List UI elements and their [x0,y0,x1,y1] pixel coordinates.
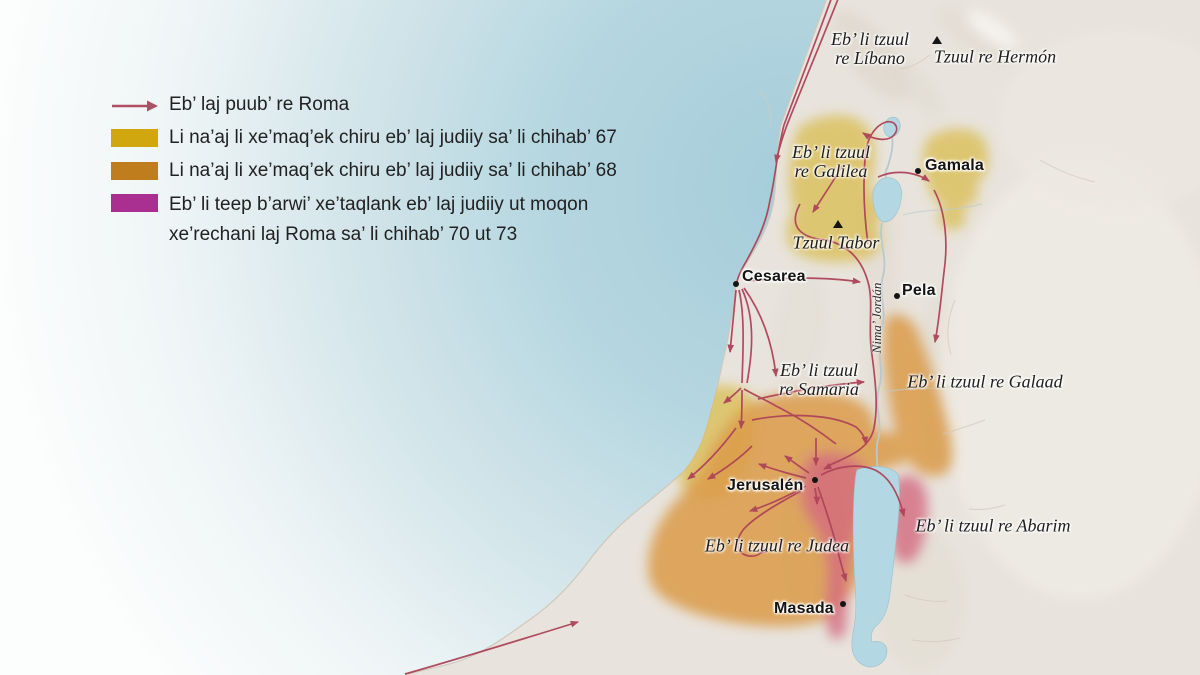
swatch-year-70-73-icon [111,194,158,212]
legend-label-year-67: Li na’aj li xe’maq’ek chiru eb’ laj judi… [169,125,617,151]
swatch-year-67-icon [111,129,158,147]
legend-label-year-70-73: Eb’ li teep b’arwi’ xe’taqlank eb’ laj j… [169,190,588,250]
city-dot-cesarea [733,281,739,287]
legend-item-year-67: Li na’aj li xe’maq’ek chiru eb’ laj judi… [111,125,617,151]
map-canvas: Eb’ li tzuulre Líbano Tzuul re Hermón Eb… [0,0,1200,675]
city-dot-masada [840,601,846,607]
city-dot-gamala [915,168,921,174]
legend-label-roman-army: Eb’ laj puub’ re Roma [169,92,349,118]
roman-route-arrow-icon [111,99,158,118]
swatch-year-68-icon [111,162,158,180]
legend-item-year-68: Li na’aj li xe’maq’ek chiru eb’ laj judi… [111,158,617,184]
city-dot-pela [894,293,900,299]
city-dot-jerusalen [812,477,818,483]
legend-label-year-68: Li na’aj li xe’maq’ek chiru eb’ laj judi… [169,158,617,184]
legend-item-roman-army: Eb’ laj puub’ re Roma [111,92,349,118]
legend: Eb’ laj puub’ re Roma Li na’aj li xe’maq… [111,92,691,282]
legend-item-year-70-73: Eb’ li teep b’arwi’ xe’taqlank eb’ laj j… [111,190,588,250]
